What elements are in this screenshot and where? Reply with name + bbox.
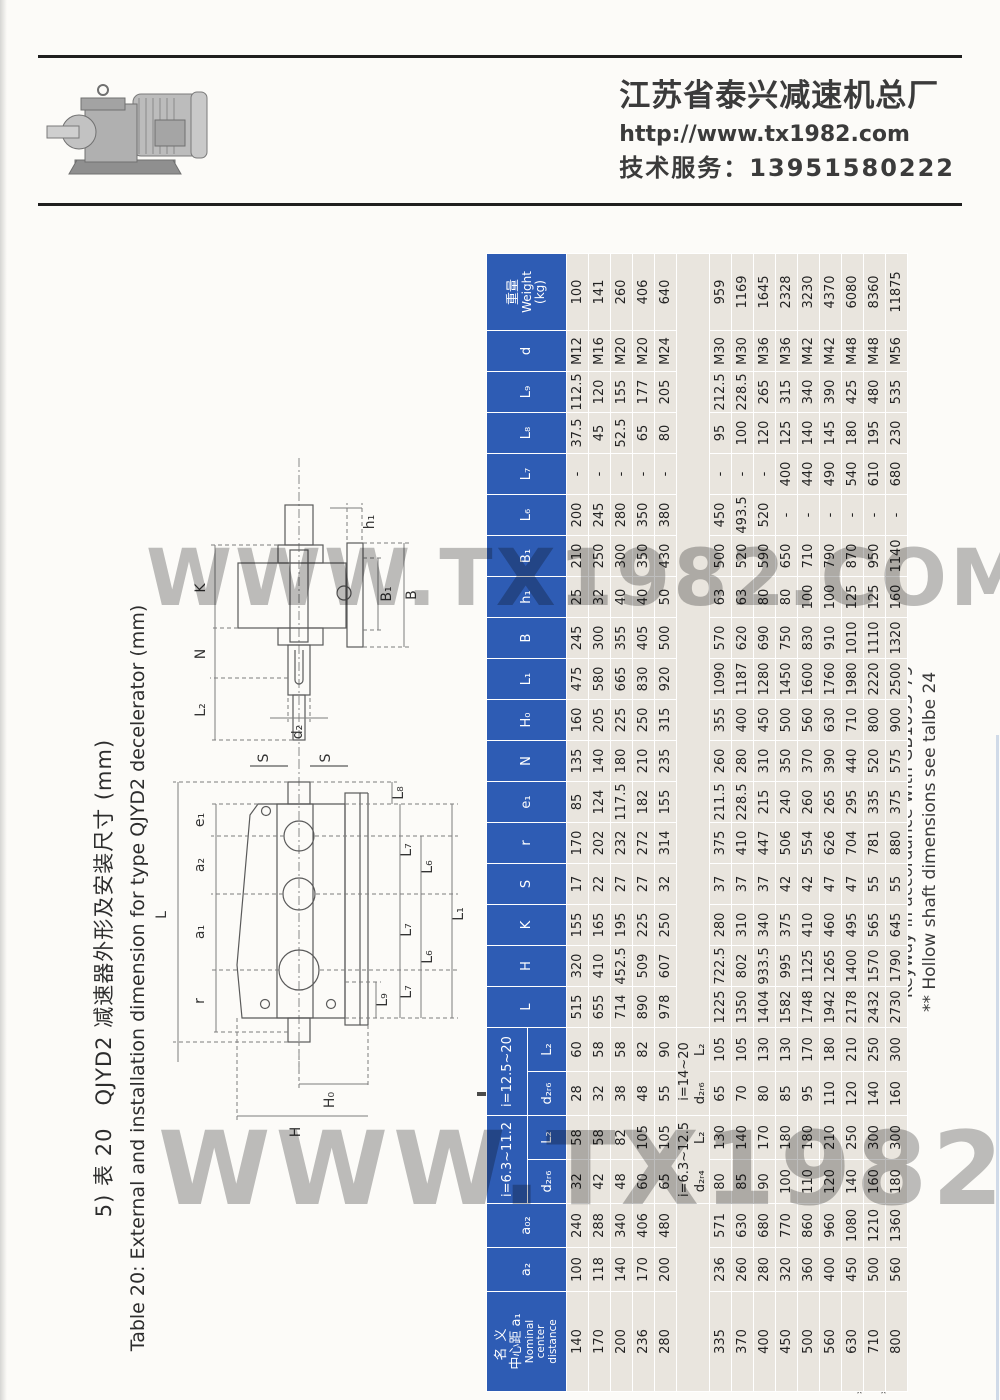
table-cell: 375 [710,822,732,863]
column-header: L₉ [487,371,567,412]
table-cell: 320 [567,945,589,986]
table-cell: 400 [732,699,754,740]
table-cell: 140 [611,1248,633,1292]
table-cell: - [754,453,776,494]
table-cell: 125 [864,576,886,617]
table-cell: 665 [611,658,633,699]
table-cell: 1110 [864,617,886,658]
dim-label-K: K [193,583,209,593]
table-cell: 320 [776,1248,798,1292]
table-cell: 165 [589,904,611,945]
table-cell: 1645 [754,253,776,330]
table-cell: 560 [820,1292,842,1392]
table-cell: 500 [710,535,732,576]
table-cell: 640 [655,253,677,330]
table-cell: 265 [754,371,776,412]
table-cell: 410 [798,904,820,945]
table-cell: 63 [732,576,754,617]
table-cell: 155 [567,904,589,945]
table-cell: 590 [754,535,776,576]
dim-label-L7c: L₇ [399,985,415,998]
table-cell: 500 [798,1292,820,1392]
table-cell: 80 [754,576,776,617]
table-cell: 240 [567,1204,589,1248]
table-cell: 860 [798,1204,820,1248]
table-cell: 280 [655,1292,677,1392]
table-cell: 350 [776,740,798,781]
table-row: 2802004806510555909786072503231415523531… [655,253,677,1391]
table-cell: 47 [842,863,864,904]
table-cell: 105 [732,1027,754,1071]
table-cell: 260 [732,1248,754,1292]
table-cell: 370 [798,740,820,781]
dim-label-S-left: S [256,753,272,762]
table-cell: 295 [842,781,864,822]
table-cell: 110 [820,1072,842,1116]
table-cell: 607 [655,945,677,986]
table-cell: 37 [754,863,776,904]
table-cell: 60 [567,1027,589,1071]
table-cell: 85 [732,1160,754,1204]
table-cell: - [886,494,908,535]
table-cell: M30 [710,330,732,371]
table-cell: 493.5 [732,494,754,535]
table-cell: 630 [820,699,842,740]
company-website: http://www.tx1982.com [619,120,955,150]
header-a2: a₂ [487,1248,567,1292]
table-cell: 630 [842,1292,864,1392]
table-row: 40028068090170801301404933.5340374472153… [754,253,776,1391]
table-cell: 315 [655,699,677,740]
table-cell: 620 [732,617,754,658]
table-cell: 440 [798,453,820,494]
table-cell: 250 [589,535,611,576]
table-cell: 140 [842,1160,864,1204]
table-cell: 978 [655,986,677,1027]
table-cell: 340 [798,371,820,412]
table-cell: 2220 [864,658,886,699]
table-cell: 447 [754,822,776,863]
table-cell: 38 [611,1072,633,1116]
table-cell: 105 [655,1116,677,1160]
table-cell: 500 [864,1248,886,1292]
dimension-table-container: 名义 中心距 a₁ Nominal center distance a₂ a₀₂… [486,253,894,1392]
table-cell: 1350 [732,986,754,1027]
dimension-lines-2 [173,782,458,1120]
table-cell: 1582 [776,986,798,1027]
table-cell: 117.5 [611,781,633,822]
table-cell: 80 [655,412,677,453]
table-cell: 100 [776,1160,798,1204]
dim-label-L1: L₁ [451,907,467,920]
table-cell: 280 [710,904,732,945]
table-cell: 280 [732,740,754,781]
service-phone: 技术服务：13951580222 [619,152,955,184]
dim-label-N: N [193,649,209,659]
table-cell: 380 [655,494,677,535]
table-cell: 212.5 [710,371,732,412]
table-cell: 960 [820,1204,842,1248]
table-cell: 27 [611,863,633,904]
table-cell: - [732,453,754,494]
table-cell: 430 [655,535,677,576]
dim-label-L7b: L₇ [399,923,415,936]
table-cell: 82 [611,1116,633,1160]
column-header: B [487,617,567,658]
header-a02: a₀₂ [487,1204,567,1248]
column-header: L₇ [487,453,567,494]
table-cell: 236 [710,1248,732,1292]
table-cell: 714 [611,986,633,1027]
table-cell: 565 [864,904,886,945]
table-cell: 245 [567,617,589,658]
table-cell: 500 [776,699,798,740]
table-cell: 1265 [820,945,842,986]
table-cell: 180 [820,1027,842,1071]
table-cell: 2730 [886,986,908,1027]
table-cell: 2328 [776,253,798,330]
table-cell: 1225 [710,986,732,1027]
column-header: d [487,330,567,371]
table-cell: 2500 [886,658,908,699]
table-cell: 710 [798,535,820,576]
table-cell: 2178 [842,986,864,1027]
table-cell: 1320 [886,617,908,658]
table-cell: 722.5 [710,945,732,986]
table-cell: 125 [776,412,798,453]
table-cell: 100 [798,576,820,617]
table-cell: 300 [611,535,633,576]
header-rule-top [38,55,962,58]
table-cell: 90 [655,1027,677,1071]
table-cell: 65 [633,412,655,453]
table-cell: 680 [886,453,908,494]
table-cell: 610 [864,453,886,494]
table-cell: M30 [732,330,754,371]
table-cell: M48 [842,330,864,371]
table-cell: 180 [886,1160,908,1204]
scan-edge-right [996,735,999,1400]
table-cell: 400 [820,1248,842,1292]
dim-label-d2: d₂ [290,725,306,740]
table-cell: 37 [710,863,732,904]
table-cell: 240 [776,781,798,822]
table-cell: 170 [633,1248,655,1292]
table-cell: 245 [589,494,611,535]
table-cell: 55 [655,1072,677,1116]
table-cell: 11875 [886,253,908,330]
dim-label-L8: L₈ [391,786,407,800]
table-cell: 100 [567,1248,589,1292]
table-cell: 800 [864,699,886,740]
table-cell: 140 [798,412,820,453]
table-cell: 475 [567,658,589,699]
table-cell: 6080 [842,253,864,330]
table-cell: 1080 [842,1204,864,1248]
table-cell: 560 [798,699,820,740]
table-cell: - [589,453,611,494]
table-row: 6304501080140250120210217814004954770429… [842,253,864,1391]
table-cell: M42 [820,330,842,371]
table-cell: 480 [655,1204,677,1248]
table-cell: 80 [776,576,798,617]
table-header-row: 名义 中心距 a₁ Nominal center distance a₂ a₀₂… [487,253,528,1391]
table-cell: 130 [776,1027,798,1071]
table-cell: 500 [655,617,677,658]
table-cell: 288 [589,1204,611,1248]
table-cell: 450 [842,1248,864,1292]
column-header: S [487,863,567,904]
drawing-end-view [238,505,363,740]
table-cell: 17 [567,863,589,904]
table-cell: - [842,494,864,535]
table-cell: 425 [842,371,864,412]
table-cell: 58 [589,1116,611,1160]
dim-label-L6b: L₆ [420,950,436,964]
table-cell: 570 [710,617,732,658]
table-cell: 200 [567,494,589,535]
dim-label-L7a: L₇ [399,843,415,856]
header-weight: 重量 Weight (kg) [487,253,567,330]
table-cell: 910 [820,617,842,658]
table-cell: 60 [633,1160,655,1204]
table-cell: 515 [567,986,589,1027]
table-cell: 790 [820,535,842,576]
dimension-lines-1 [210,503,410,740]
table-cell: 1090 [710,658,732,699]
table-cell: 880 [886,822,908,863]
column-header: h₁ [487,576,567,617]
table-cell: 37.5 [567,412,589,453]
subheader-d2r6-g1: d₂ᵣ₆ [528,1160,567,1204]
table-cell: 211.5 [710,781,732,822]
table-cell: 265 [820,781,842,822]
table-cell: 236 [633,1292,655,1392]
table-cell: 995 [776,945,798,986]
table-cell: 506 [776,822,798,863]
table-cell: 1450 [776,658,798,699]
table-cell: 210 [842,1027,864,1071]
table-cell: 315 [776,371,798,412]
table-cell: - [776,494,798,535]
table-cell: 125 [842,576,864,617]
table-cell: 626 [820,822,842,863]
table-cell: 520 [732,535,754,576]
table-cell: 40 [633,576,655,617]
table-title-zh: 5) 表 20 QJYD2 减速器外形及安装尺寸 (mm) [86,592,122,1364]
table-cell: 80 [710,1160,732,1204]
table-cell: 540 [842,453,864,494]
table-cell: 340 [611,1204,633,1248]
table-cell: 400 [776,453,798,494]
table-row: 33523657180130651051225722.528037375211.… [710,253,732,1391]
table-cell: 58 [589,1027,611,1071]
dim-label-r: r [192,998,208,1004]
table-cell: 770 [776,1204,798,1248]
table-cell: 32 [589,1072,611,1116]
table-cell: 802 [732,945,754,986]
table-cell: 390 [820,371,842,412]
table-cell: 630 [732,1204,754,1248]
header-ratio-group-1: i=6.3~11.2 [487,1116,528,1204]
header-rule-bottom [38,203,962,206]
table-cell: 42 [798,863,820,904]
table-cell: 450 [710,494,732,535]
table-cell: 90 [754,1160,776,1204]
table-cell: 170 [567,822,589,863]
column-header: H₀ [487,699,567,740]
table-cell: 140 [589,740,611,781]
table-cell: 55 [886,863,908,904]
table-cell: 1790 [886,945,908,986]
ratio-change-group-1: i=6.3~12.5 d₂ᵣ₄L₂ [677,1116,710,1204]
table-row: 5604009601202101101801942126546047626265… [820,253,842,1391]
table-cell: 235 [655,740,677,781]
table-cell: 314 [655,822,677,863]
table-cell: 170 [754,1116,776,1160]
table-cell: 230 [886,412,908,453]
table-cell: - [611,453,633,494]
table-cell: 215 [754,781,776,822]
subheader-d2r6-g2: d₂ᵣ₆ [528,1072,567,1116]
table-cell: 140 [864,1072,886,1116]
table-cell: 28 [567,1072,589,1116]
table-cell: 830 [633,658,655,699]
table-cell: 120 [589,371,611,412]
table-cell: 890 [633,986,655,1027]
table-row: 8005601360180300160300273017906455588037… [886,253,908,1391]
dim-label-e1: e₁ [192,813,208,827]
table-cell: 130 [710,1116,732,1160]
table-cell: 750 [776,617,798,658]
table-cell: 82 [633,1027,655,1071]
table-cell: 48 [611,1160,633,1204]
column-header: N [487,740,567,781]
table-cell: 272 [633,822,655,863]
gear-motor-photo [45,82,217,184]
table-cell: 80 [754,1072,776,1116]
table-cell: 450 [754,699,776,740]
table-cell: - [633,453,655,494]
column-header: K [487,904,567,945]
table-cell: 959 [710,253,732,330]
table-cell: 3230 [798,253,820,330]
table-cell: 200 [611,1292,633,1392]
table-cell: 1748 [798,986,820,1027]
table-cell: 704 [842,822,864,863]
dim-label-a1: a₁ [192,925,208,939]
table-cell: M56 [886,330,908,371]
dim-label-B: B [404,590,420,600]
table-cell: 1210 [864,1204,886,1248]
table-cell: 160 [886,576,908,617]
table-cell: 571 [710,1204,732,1248]
table-cell: 40 [611,576,633,617]
table-cell: 655 [589,986,611,1027]
table-cell: 370 [732,1292,754,1392]
table-cell: 225 [633,904,655,945]
table-cell: 781 [864,822,886,863]
table-cell: 520 [754,494,776,535]
table-cell: 410 [732,822,754,863]
table-cell: 180 [842,412,864,453]
table-cell: 118 [589,1248,611,1292]
table-cell: 105 [633,1116,655,1160]
table-cell: 65 [710,1072,732,1116]
table-cell: 2432 [864,986,886,1027]
table-cell: 210 [633,740,655,781]
table-cell: 170 [589,1292,611,1392]
table-cell: 70 [732,1072,754,1116]
table-cell: 1600 [798,658,820,699]
table-cell: M20 [611,330,633,371]
table-cell: 250 [655,904,677,945]
table-cell: 95 [710,412,732,453]
table-cell: 232 [611,822,633,863]
table-cell: 205 [655,371,677,412]
table-cell: 495 [842,904,864,945]
table-cell: 710 [864,1292,886,1392]
table-cell: 202 [589,822,611,863]
table-cell: 1404 [754,986,776,1027]
table-cell: - [820,494,842,535]
table-cell: 8360 [864,253,886,330]
table-cell: 140 [567,1292,589,1392]
table-cell: 22 [589,863,611,904]
table-cell: 120 [754,412,776,453]
table-cell: 141 [589,253,611,330]
table-cell: 50 [655,576,677,617]
table-cell: 1140 [886,535,908,576]
table-row: 1701182884258325865541016522202124140205… [589,253,611,1391]
table-cell: M36 [776,330,798,371]
drawing-side-view [237,766,368,1042]
table-cell: 32 [655,863,677,904]
column-header: e₁ [487,781,567,822]
table-cell: 170 [798,1027,820,1071]
column-header: L₆ [487,494,567,535]
table-cell: 32 [567,1160,589,1204]
table-cell: 355 [710,699,732,740]
table-cell: 490 [820,453,842,494]
table-cell: 1942 [820,986,842,1027]
table-cell: 300 [886,1027,908,1071]
column-header: L₈ [487,412,567,453]
table-row: 2361704066010548828905092252727218221025… [633,253,655,1391]
table-cell: 155 [655,781,677,822]
table-cell: 710 [842,699,864,740]
table-cell: M36 [754,330,776,371]
table-cell: 800 [886,1292,908,1392]
table-cell: 145 [820,412,842,453]
table-cell: 310 [732,904,754,945]
table-cell: 210 [567,535,589,576]
table-cell: 260 [611,253,633,330]
subheader-L2-g1: L₂ [528,1116,567,1160]
table-cell: 85 [567,781,589,822]
table-cell: 1010 [842,617,864,658]
table-cell: 400 [754,1292,776,1392]
table-cell: 135 [567,740,589,781]
table-cell: 355 [611,617,633,658]
table-cell: 27 [633,863,655,904]
table-cell: 509 [633,945,655,986]
table-cell: 130 [754,1027,776,1071]
table-cell: 406 [633,253,655,330]
table-cell: 690 [754,617,776,658]
table-cell: M20 [633,330,655,371]
dimension-table-body: 1401002403258286051532015517170851351604… [567,253,908,1391]
